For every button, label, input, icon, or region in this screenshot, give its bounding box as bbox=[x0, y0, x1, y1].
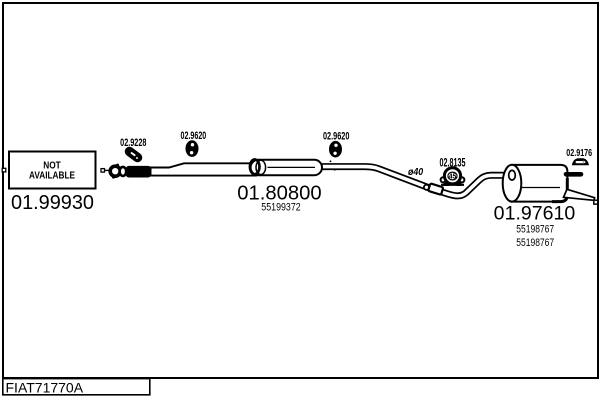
svg-text:55199372: 55199372 bbox=[261, 201, 300, 213]
svg-text:FIAT71770A: FIAT71770A bbox=[6, 380, 84, 396]
svg-text:01.99930: 01.99930 bbox=[11, 191, 94, 214]
svg-text:55198767: 55198767 bbox=[516, 223, 554, 235]
svg-text:AVAILABLE: AVAILABLE bbox=[29, 170, 75, 181]
svg-text:02.9228: 02.9228 bbox=[120, 137, 146, 149]
svg-text:02.9620: 02.9620 bbox=[323, 130, 350, 142]
svg-text:02.9620: 02.9620 bbox=[181, 130, 207, 142]
svg-text:55198767: 55198767 bbox=[516, 237, 554, 249]
svg-text:ø40: ø40 bbox=[408, 167, 424, 178]
svg-text:45: 45 bbox=[449, 174, 457, 181]
svg-text:01.97610: 01.97610 bbox=[494, 202, 576, 224]
svg-text:02.9176: 02.9176 bbox=[566, 147, 592, 159]
